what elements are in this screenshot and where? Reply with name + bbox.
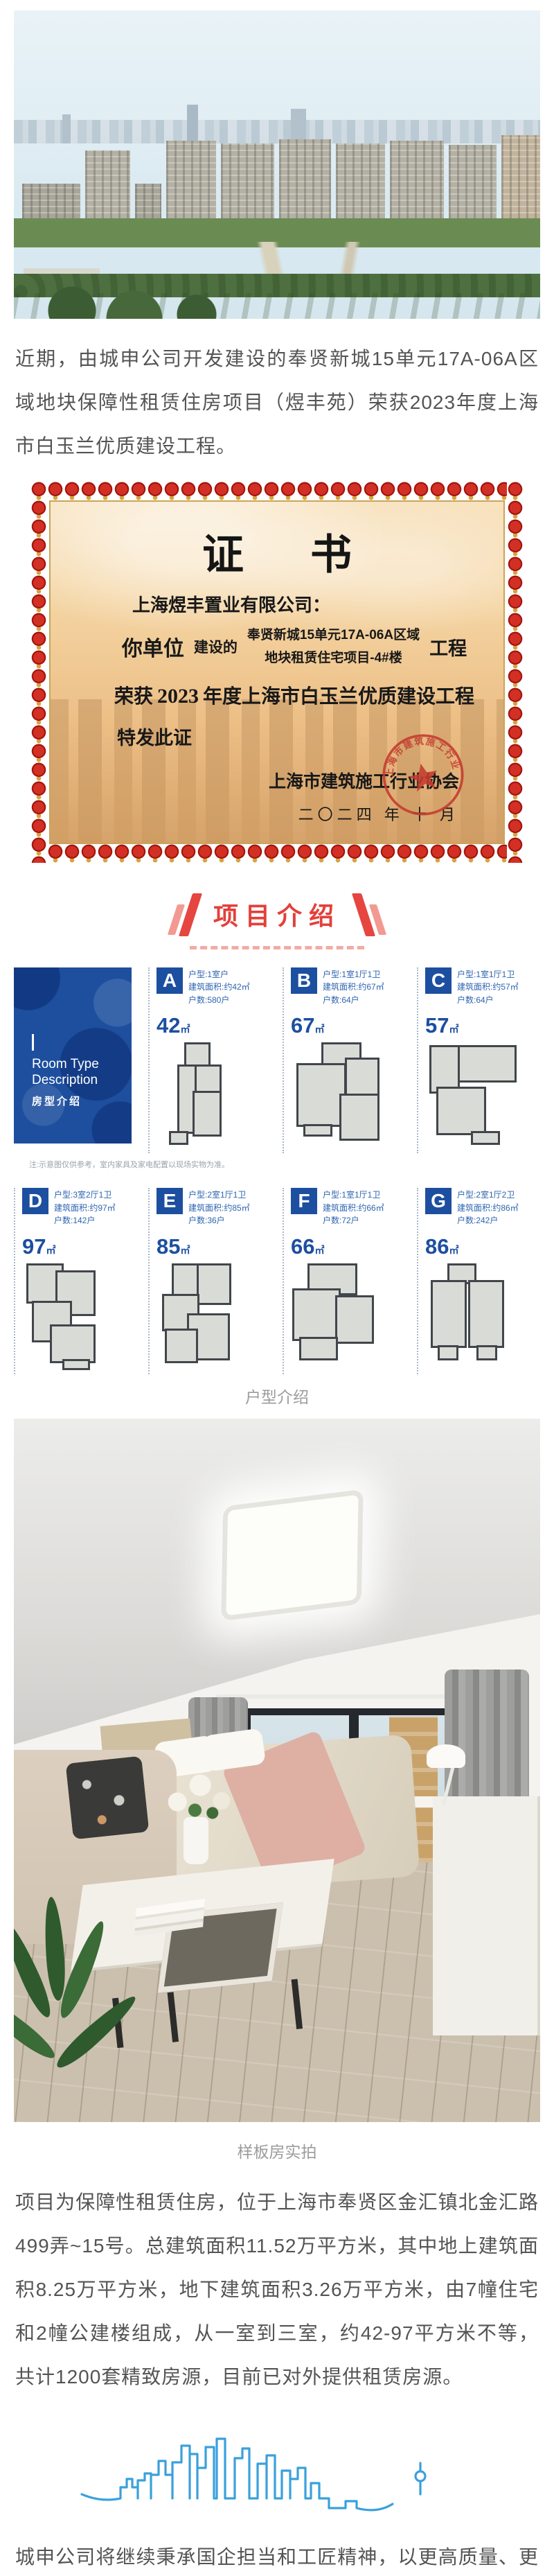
unit-size: 66㎡ — [291, 1234, 406, 1259]
cover-title: Room Type Description 房型介绍 — [32, 1056, 99, 1109]
patterned-pillow — [66, 1756, 150, 1840]
certificate-project-line: 你单位 建设的 奉贤新城15单元17A-06A区域 地块租赁住宅项目-4#楼 工… — [113, 624, 476, 670]
section-title: 项目介绍 — [213, 896, 341, 932]
unit-card-b: B 户型:1室1厅1卫建筑面积:约67㎡户数:64户 67㎡ — [283, 967, 406, 1154]
unit-size: 86㎡ — [425, 1234, 540, 1259]
unit-card-g: G 户型:2室1厅2卫建筑面积:约86㎡户数:242户 86㎡ — [417, 1188, 540, 1374]
showroom-caption: 样板房实拍 — [0, 2139, 554, 2162]
floorplan-diagram — [425, 1042, 540, 1153]
floorplan-grid-image[interactable]: Room Type Description 房型介绍 A 户型:1室户建筑面积:… — [0, 949, 554, 1375]
unit-letter-badge: B — [291, 967, 317, 994]
unit-card-c: C 户型:1室1厅1卫建筑面积:约57㎡户数:64户 57㎡ — [417, 967, 540, 1154]
certificate-project-suffix: 工程 — [429, 633, 467, 660]
unit-size: 85㎡ — [157, 1234, 271, 1259]
desk — [433, 1796, 540, 2035]
cover-accent-bar — [32, 1034, 34, 1051]
article-page: 近期，由城申公司开发建设的奉贤新城15单元17A-06A区域地块保障性租赁住房项… — [0, 0, 554, 2576]
ceiling-light — [221, 1489, 363, 1621]
unit-size: 97㎡ — [22, 1234, 137, 1259]
unit-card-d: D 户型:3室2厅1卫建筑面积:约97㎡户数:142户 97㎡ — [14, 1188, 137, 1374]
award-certificate-image[interactable]: 证书 上海煜丰置业有限公司： 你单位 建设的 奉贤新城15单元17A-06A区域… — [30, 482, 524, 863]
unit-letter-badge: A — [157, 967, 183, 994]
skyline-divider-icon — [0, 2422, 554, 2523]
decor-slash-icon — [172, 892, 195, 936]
unit-card-a: A 户型:1室户建筑面积:约42㎡户数:580户 42㎡ — [148, 967, 271, 1154]
floorplan-cover-card: Room Type Description 房型介绍 — [14, 967, 132, 1144]
decor-slash-icon — [359, 892, 382, 936]
project-detail-paragraph: 项目为保障性租赁住房，位于上海市奉贤区金汇镇北金汇路499弄~15号。总建筑面积… — [0, 2180, 554, 2399]
star-icon — [406, 760, 440, 792]
certificate-project-name: 奉贤新城15单元17A-06A区域 地块租赁住宅项目-4#楼 — [247, 624, 420, 670]
unit-letter-badge: E — [157, 1188, 183, 1214]
floorplan-row-1: Room Type Description 房型介绍 A 户型:1室户建筑面积:… — [14, 967, 540, 1154]
section-header-project-intro: 项目介绍 — [0, 892, 554, 936]
floorplan-diagram — [291, 1263, 406, 1374]
certificate-recipient: 上海煜丰置业有限公司： — [132, 591, 483, 617]
unit-letter-badge: G — [425, 1188, 452, 1214]
floorplan-diagram — [22, 1263, 137, 1374]
unit-letter-badge: D — [22, 1188, 48, 1214]
unit-card-f: F 户型:1室1厅1卫建筑面积:约66㎡户数:72户 66㎡ — [283, 1188, 406, 1374]
certificate-built-label: 建设的 — [194, 636, 238, 657]
certificate-border — [507, 482, 524, 863]
foreground-trees — [35, 263, 242, 319]
floorplan-disclaimer: 注:示意图仅供参考，室内家具及家电配置以现场实物为准。 — [29, 1159, 540, 1170]
hero-photo[interactable] — [14, 10, 540, 319]
intro-paragraph: 近期，由城申公司开发建设的奉贤新城15单元17A-06A区域地块保障性租赁住房项… — [0, 337, 554, 468]
certificate-body: 证书 上海煜丰置业有限公司： 你单位 建设的 奉贤新城15单元17A-06A区域… — [49, 500, 505, 844]
unit-size: 57㎡ — [425, 1013, 540, 1038]
certificate-border — [30, 844, 524, 863]
desk-lamp-head — [427, 1744, 465, 1768]
floorplan-diagram — [291, 1042, 406, 1153]
floorplan-diagram — [157, 1042, 271, 1153]
flower-bouquet — [161, 1769, 237, 1824]
floorplan-diagram — [157, 1263, 271, 1374]
certificate-border — [30, 482, 47, 863]
certificate-you-label: 你单位 — [122, 631, 184, 662]
unit-letter-badge: C — [425, 967, 452, 994]
unit-card-e: E 户型:2室1厅1卫建筑面积:约85㎡户数:36户 85㎡ — [148, 1188, 271, 1374]
unit-letter-badge: F — [291, 1188, 317, 1214]
showroom-photo[interactable] — [14, 1419, 540, 2122]
certificate-border — [30, 482, 524, 500]
vase — [184, 1817, 208, 1864]
closing-paragraph: 城申公司将继续秉承国企担当和工匠精神，以更高质量、更高标准、更高水平打造更多优质… — [0, 2535, 554, 2576]
certificate-title: 证书 — [71, 521, 483, 581]
unit-size: 67㎡ — [291, 1013, 406, 1038]
leaf — [42, 1896, 67, 2001]
potted-plant — [14, 1890, 177, 2122]
unit-size: 42㎡ — [157, 1013, 271, 1038]
official-seal-icon: 上海市建筑施工行业协会 — [370, 722, 476, 827]
floorplan-caption: 户型介绍 — [0, 1384, 554, 1408]
floorplan-diagram — [425, 1263, 540, 1374]
certificate-award-line: 荣获2023年度上海市白玉兰优质建设工程 — [114, 681, 483, 709]
apartment-buildings — [14, 128, 540, 232]
floorplan-row-2: D 户型:3室2厅1卫建筑面积:约97㎡户数:142户 97㎡ E 户型:2室1… — [14, 1188, 540, 1374]
